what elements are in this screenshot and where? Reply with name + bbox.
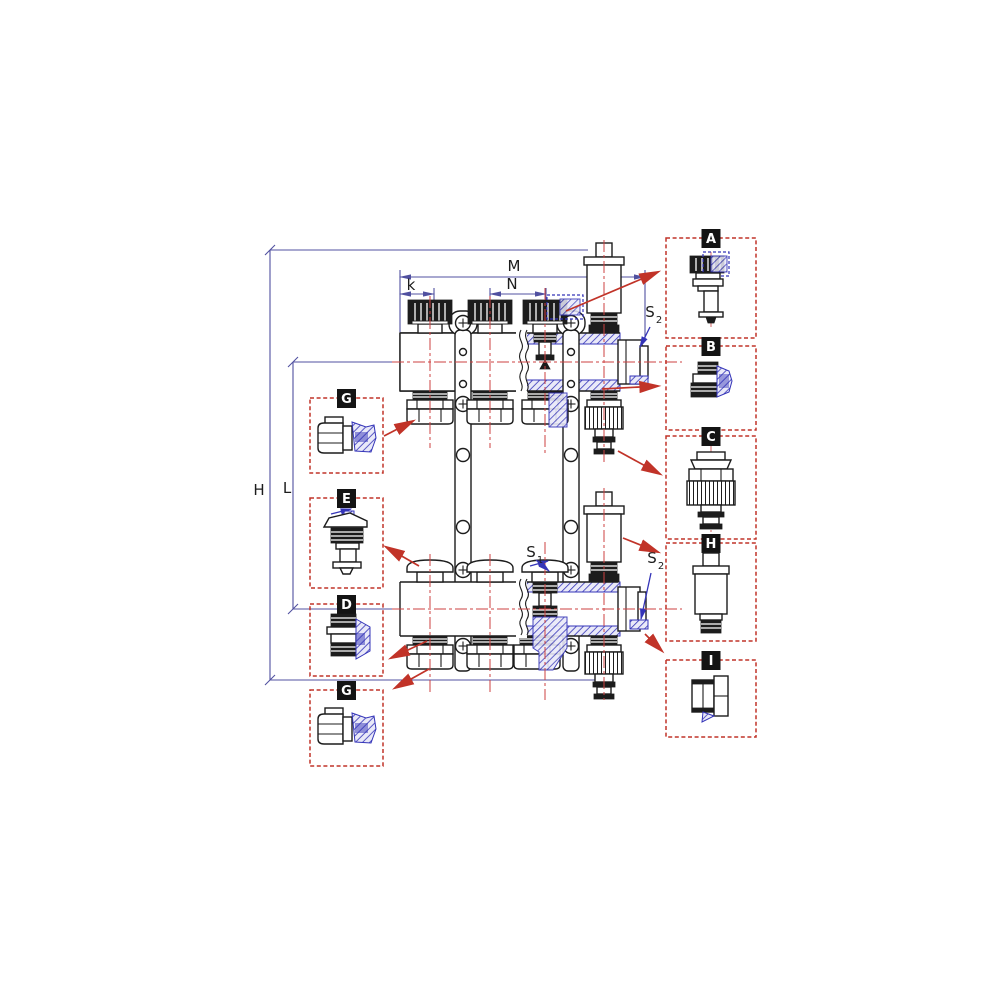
arrow-to-g2	[395, 669, 429, 688]
s1-sub: 1	[537, 555, 543, 566]
dim-label-n: N	[506, 275, 517, 293]
callout-label-e: E	[342, 492, 351, 507]
arrow-to-c	[618, 451, 660, 474]
glyph-compression-fitting	[318, 417, 376, 453]
technical-drawing-page: H L M k N	[0, 0, 1000, 1000]
glyph-end-plug	[692, 676, 728, 722]
glyph-valve-insert	[324, 509, 367, 574]
callout-box-e: E	[310, 489, 383, 588]
callout-label-a: A	[706, 232, 716, 247]
manifold-technical-drawing: H L M k N	[0, 0, 1000, 1000]
callout-label-h: H	[706, 537, 717, 552]
callout-box-h: H	[666, 534, 756, 641]
s2-sub: 2	[658, 561, 664, 572]
glyph-threaded-adapter	[327, 614, 370, 659]
callout-label-g1: G	[341, 392, 352, 407]
s2-sub: 2	[656, 315, 662, 326]
callout-box-b: B	[666, 337, 756, 430]
glyph-compression-fitting	[318, 708, 376, 744]
dim-label-m: M	[508, 257, 521, 275]
glyph-connector-fitting	[691, 362, 732, 397]
callout-box-g1: G	[310, 389, 383, 473]
callout-box-c: C	[666, 427, 756, 539]
section-highlight	[549, 393, 567, 427]
callout-label-d: D	[341, 598, 352, 613]
callout-box-d: D	[310, 595, 383, 676]
callout-box-i: I	[666, 651, 756, 737]
glyph-drain-valve	[687, 446, 735, 532]
callout-label-g2: G	[341, 684, 352, 699]
dim-label-k: k	[407, 276, 416, 294]
arrow-from-g1	[384, 421, 413, 436]
arrow-to-h	[623, 538, 658, 552]
dim-label-l: L	[283, 479, 292, 497]
callout-box-a: A	[666, 229, 756, 338]
callout-label-i: I	[709, 654, 714, 669]
glyph-air-vent	[693, 553, 729, 633]
callout-box-g2: G	[310, 681, 383, 766]
arrow-to-e	[386, 547, 419, 566]
arrow-to-i	[645, 634, 662, 651]
dim-label-h: H	[253, 481, 264, 499]
s2-base: S	[645, 303, 655, 321]
s1-base: S	[526, 543, 536, 561]
glyph-thermostatic-insert	[690, 252, 729, 330]
callout-label-b: B	[706, 340, 716, 355]
label-s2-top: S 2	[640, 303, 662, 347]
callout-label-c: C	[706, 430, 716, 445]
